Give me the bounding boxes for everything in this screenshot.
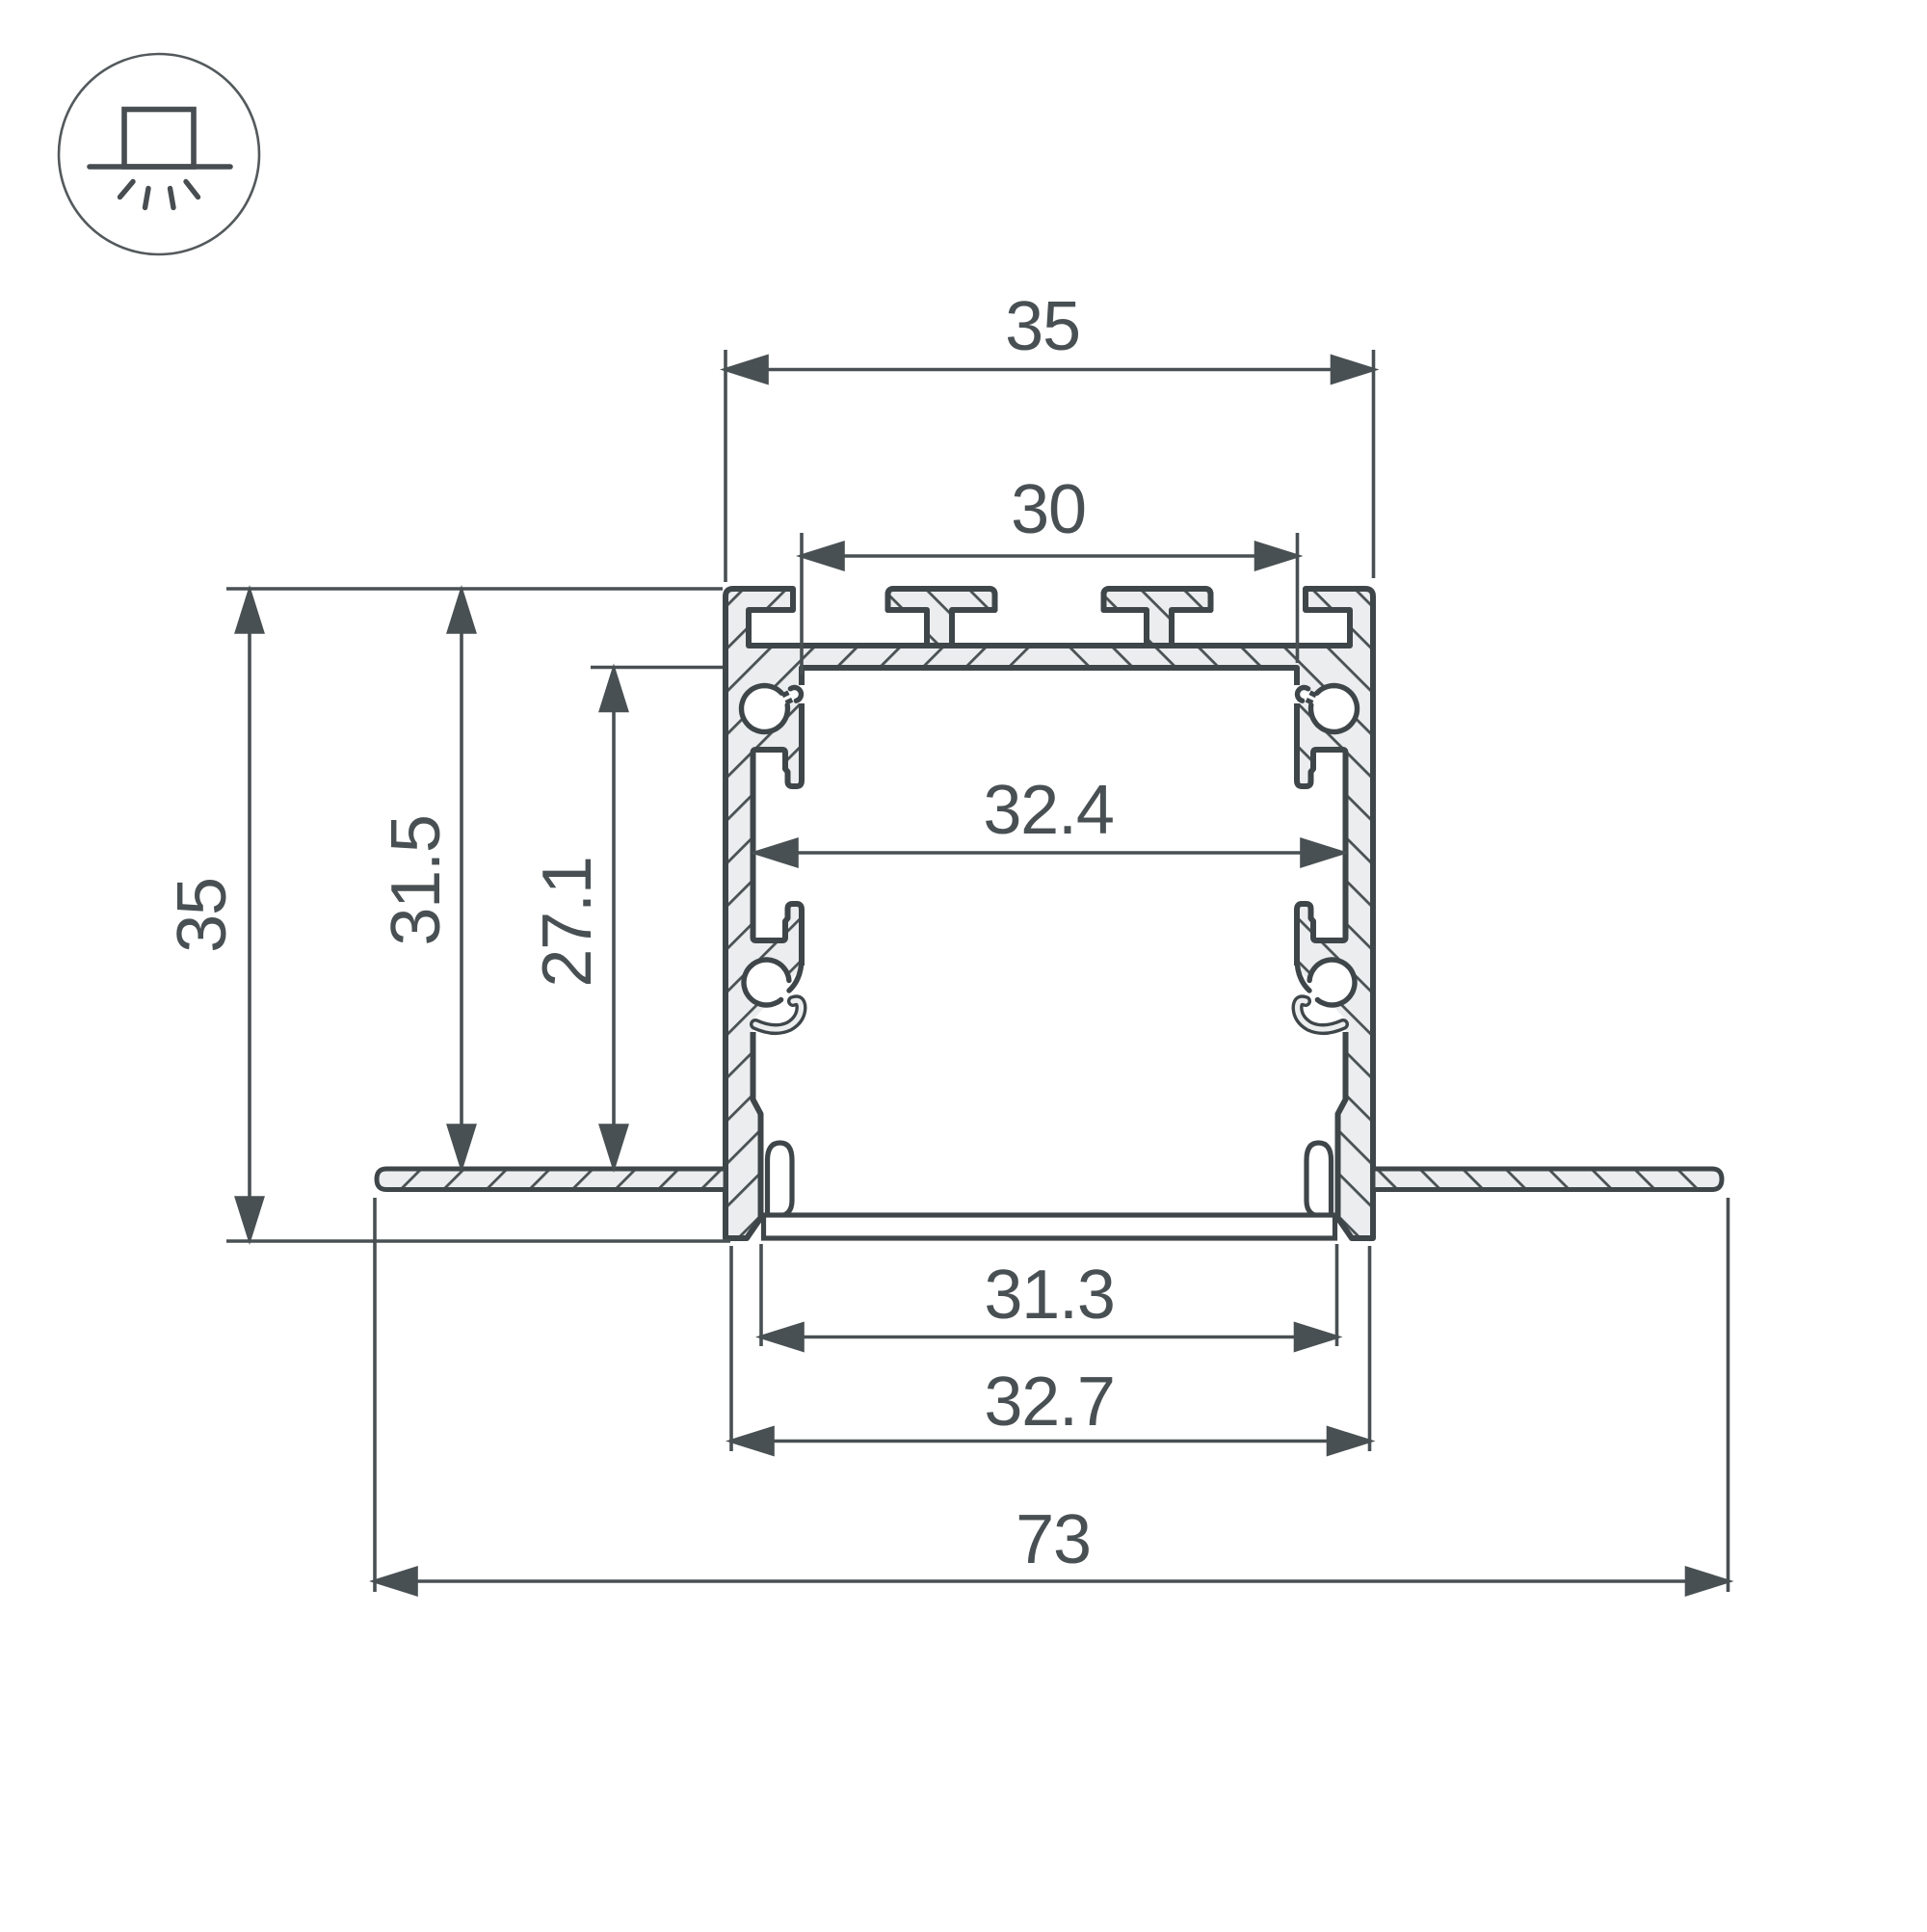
svg-text:31.3: 31.3 [984,1257,1114,1334]
svg-text:32.4: 32.4 [983,772,1113,849]
svg-text:31.5: 31.5 [378,815,455,945]
svg-text:32.7: 32.7 [984,1363,1114,1441]
svg-text:27.1: 27.1 [529,857,606,987]
svg-text:35: 35 [164,878,241,953]
svg-text:35: 35 [1005,288,1080,365]
svg-text:30: 30 [1011,471,1086,548]
svg-text:73: 73 [1016,1501,1091,1578]
